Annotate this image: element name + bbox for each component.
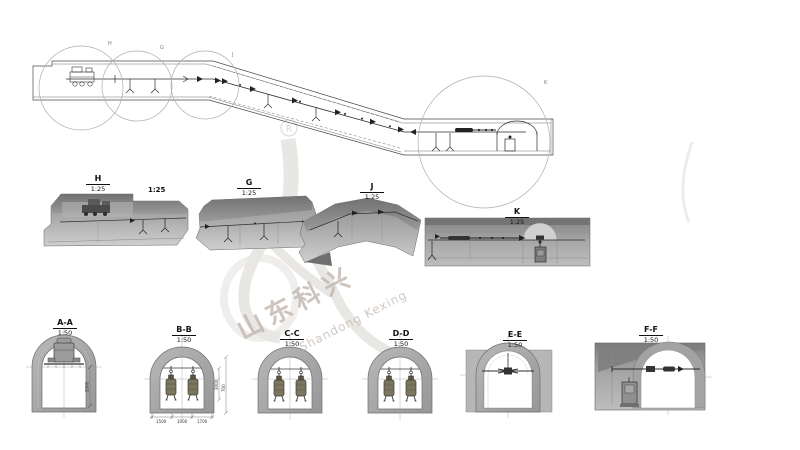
svg-text:G: G (160, 45, 164, 51)
svg-text:1000: 1000 (177, 419, 188, 424)
section-label-bb: B-B1:50 (166, 317, 202, 344)
detail-view-g (196, 196, 316, 250)
section-label-aa: A-A1:50 (47, 310, 83, 337)
section-label-ff: F-F1:50 (633, 317, 669, 344)
floating-scale-label: 1:25 (148, 186, 165, 194)
cad-drawing-canvas: R (0, 0, 800, 450)
drawing-sheet: R (0, 0, 800, 450)
section-ff (595, 336, 712, 415)
svg-text:3000: 3000 (214, 379, 219, 390)
svg-text:2000: 2000 (85, 381, 90, 392)
svg-text:700: 700 (221, 384, 226, 392)
svg-text:J: J (231, 52, 233, 58)
plan-centerline-symbols (115, 75, 537, 151)
section-label-dd: D-D1:50 (383, 321, 419, 348)
plan-machine (70, 67, 94, 86)
detail-view-h (44, 194, 188, 246)
detail-label-j: J1:25 (354, 174, 390, 201)
detail-view-j (299, 198, 421, 266)
detail-label-k: K1:25 (499, 199, 535, 226)
svg-text:1700: 1700 (197, 419, 208, 424)
section-bb: 3000 700 1500 1000 1700 (144, 334, 228, 424)
detail-label-h: H1:25 (80, 166, 116, 193)
svg-text:H: H (108, 41, 112, 47)
section-label-ee: E-E1:50 (497, 322, 533, 349)
detail-label-g: G1:25 (231, 170, 267, 197)
svg-text:K: K (544, 80, 548, 86)
registered-mark-icon: R (286, 125, 292, 135)
svg-text:1500: 1500 (156, 419, 167, 424)
